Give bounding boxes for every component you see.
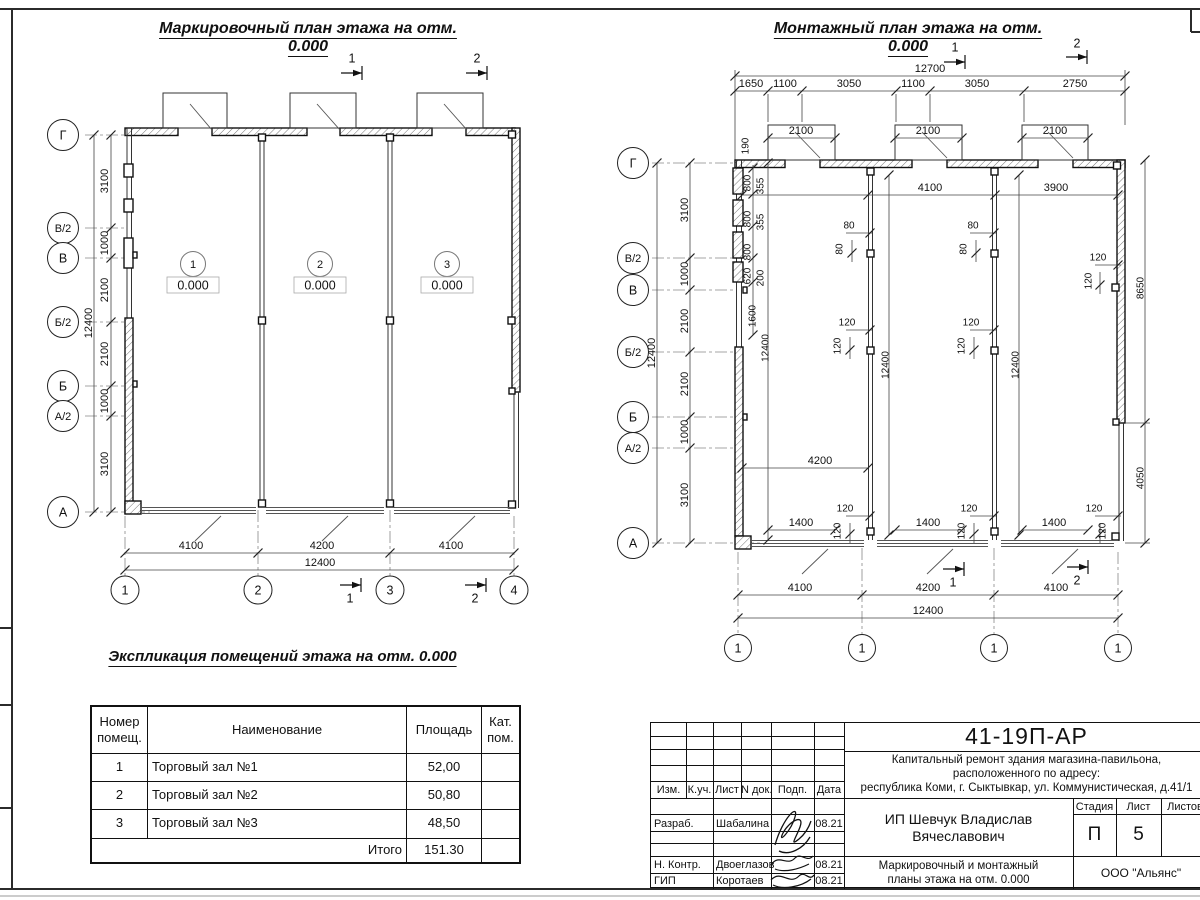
- room-level: 0.000: [431, 278, 462, 292]
- col-dimensions: 4100 4200 4100 12400: [734, 582, 1123, 623]
- col-header-cat: Кат. пом.: [482, 706, 521, 753]
- axis-label: 2: [255, 583, 262, 597]
- rev-header: Подп.: [771, 784, 814, 796]
- dim-label: 1650: [739, 78, 763, 90]
- dim-label: 3050: [837, 78, 861, 90]
- section-mark-label: 1: [950, 575, 957, 589]
- project-desc-line: расположенного по адресу:: [844, 768, 1200, 781]
- col-header-name: Наименование: [148, 706, 407, 753]
- signer-date: 08.21: [814, 859, 844, 871]
- dim-label: 4100: [788, 582, 812, 594]
- dim-label: 190: [741, 137, 752, 154]
- cell-cat: [482, 753, 521, 781]
- rev-header: Лист: [713, 784, 741, 796]
- dim-label: 80: [835, 243, 846, 255]
- explication-title: Экспликация помещений этажа на отм. 0.00…: [95, 648, 470, 665]
- signer-role: Н. Контр.: [654, 859, 701, 871]
- dim-label: 120: [833, 337, 844, 354]
- dim-label: 12400: [1011, 351, 1022, 379]
- axis-label: В/2: [55, 223, 72, 235]
- axis-lines: [652, 163, 1118, 634]
- dim-label: 4200: [808, 455, 832, 467]
- dim-label: 2100: [99, 342, 111, 366]
- dim-label: 2100: [1043, 125, 1067, 137]
- room-marks: 1 0.000 2 0.000 3 0.000: [167, 252, 473, 294]
- table-row: 1 Торговый зал №1 52,00: [91, 753, 520, 781]
- axis-label: А: [629, 536, 638, 550]
- dim-label: 120: [837, 504, 854, 515]
- axis-label: Б: [629, 410, 637, 424]
- dim-label: 120: [957, 337, 968, 354]
- sheet-title-line: планы этажа на отм. 0.000: [844, 874, 1073, 887]
- dim-label: 120: [1090, 253, 1107, 264]
- axis-label: А: [59, 505, 68, 519]
- dim-label: 800: [743, 243, 754, 260]
- dim-label: 3100: [679, 198, 691, 222]
- dim-label: 1400: [916, 517, 940, 529]
- dim-label: 120: [1086, 504, 1103, 515]
- dim-label: 80: [967, 221, 979, 232]
- dim-label: 80: [843, 221, 855, 232]
- section-mark-label: 2: [1074, 573, 1081, 587]
- dim-label: 620: [743, 267, 754, 284]
- signer-date: 08.21: [814, 818, 844, 830]
- rev-header: Дата: [814, 784, 844, 796]
- signer-name: Двоеглазов: [716, 859, 774, 871]
- cell-name: Торговый зал №2: [148, 781, 407, 809]
- row-axis-bubbles: Г В/2 В Б/2 Б А/2 А: [48, 120, 79, 528]
- dim-label: 120: [1098, 522, 1109, 539]
- axis-label: 1: [122, 583, 129, 597]
- dim-label: 1000: [679, 420, 691, 444]
- top-dimensions: 12700 1650 1100 3050 1100 3050 2750: [731, 63, 1130, 160]
- row-dimensions: 3100 1000 2100 2100 1000 3100 12400: [83, 131, 116, 517]
- dim-label: 2100: [916, 125, 940, 137]
- signature-icon: [769, 801, 815, 855]
- dim-label: 12400: [881, 351, 892, 379]
- marking-plan: 1 0.000 2 0.000 3 0.000 3100 1000 2100 2…: [48, 51, 529, 605]
- col-header-num: Номер помещ.: [91, 706, 148, 753]
- dim-label: 200: [756, 269, 767, 286]
- dim-label: 120: [1084, 272, 1095, 289]
- axis-label: 4: [511, 583, 518, 597]
- stage-header: Стадия: [1073, 801, 1116, 813]
- dim-label: 4100: [1044, 582, 1068, 594]
- cell-name: Торговый зал №1: [148, 753, 407, 781]
- signer-role: ГИП: [654, 875, 676, 887]
- dim-label: 4100: [439, 540, 463, 552]
- dim-label: 2750: [1063, 78, 1087, 90]
- montage-plan-title: Монтажный план этажа на отм. 0.000: [758, 20, 1058, 56]
- cell-area: 52,00: [407, 753, 482, 781]
- axis-label: 1: [735, 641, 742, 655]
- dim-label: 4100: [918, 182, 942, 194]
- axis-label: А/2: [55, 411, 72, 423]
- dim-total-label: 12400: [83, 308, 95, 339]
- room-number: 3: [444, 259, 450, 271]
- company-name: ООО "Альянс": [1073, 867, 1200, 880]
- dim-label: 1100: [901, 78, 925, 90]
- dim-label: 2100: [789, 125, 813, 137]
- drawing-sheet: { "marking_plan": { "title": "Маркировоч…: [0, 0, 1200, 900]
- cell-area: 48,50: [407, 809, 482, 838]
- dim-label: 4200: [916, 582, 940, 594]
- sheets-header: Листов: [1161, 801, 1200, 813]
- axis-label: В: [59, 251, 67, 265]
- cell-cat: [482, 838, 521, 863]
- axis-label: 1: [1115, 641, 1122, 655]
- room-level: 0.000: [304, 278, 335, 292]
- col-dimensions: 4100 4200 4100 12400: [121, 540, 519, 575]
- signature-icon: [769, 869, 815, 889]
- rev-header: К.уч.: [686, 784, 713, 796]
- dim-label: 120: [963, 318, 980, 329]
- dim-label: 1600: [748, 304, 759, 327]
- cell-name: Торговый зал №3: [148, 809, 407, 838]
- cell-num: 2: [91, 781, 148, 809]
- section-mark-label: 1: [347, 591, 354, 605]
- signer-name: Коротаев: [716, 875, 764, 887]
- dim-label: 2100: [99, 278, 111, 302]
- section-mark-label: 2: [472, 591, 479, 605]
- explication-table: Номер помещ. Наименование Площадь Кат. п…: [90, 705, 521, 864]
- table-row: 3 Торговый зал №3 48,50: [91, 809, 520, 838]
- section-mark-label: 2: [474, 51, 481, 65]
- dim-label: 3100: [679, 483, 691, 507]
- marking-plan-title: Маркировочный план этажа на отм. 0.000: [158, 20, 458, 56]
- table-row: 2 Торговый зал №2 50,80: [91, 781, 520, 809]
- client-name-line: ИП Шевчук Владислав: [844, 812, 1073, 827]
- dim-total-label: 12400: [305, 557, 336, 569]
- dim-label: 1400: [1042, 517, 1066, 529]
- dim-label: 2100: [679, 309, 691, 333]
- signer-name: Шабалина: [716, 818, 769, 830]
- project-desc-line: Капитальный ремонт здания магазина-павил…: [844, 754, 1200, 767]
- dim-label: 1000: [679, 262, 691, 286]
- sheet-title-line: Маркировочный и монтажный: [844, 860, 1073, 873]
- dim-label: 1000: [99, 231, 111, 255]
- total-label: Итого: [91, 838, 407, 863]
- cell-num: 1: [91, 753, 148, 781]
- dim-label: 3900: [1044, 182, 1068, 194]
- client-name-line: Вячеславович: [844, 829, 1073, 844]
- axis-lines: [85, 135, 514, 604]
- montage-plan: 12700 1650 1100 3050 1100 3050 2750: [618, 36, 1151, 661]
- dim-label: 4100: [179, 540, 203, 552]
- dim-label: 355: [756, 213, 767, 230]
- doc-number: 41-19П-АР: [844, 724, 1200, 749]
- axis-label: Б: [59, 379, 67, 393]
- axis-label: 1: [991, 641, 998, 655]
- total-value: 151.30: [407, 838, 482, 863]
- col-header-area: Площадь: [407, 706, 482, 753]
- dim-label: 8650: [1136, 276, 1147, 299]
- axis-label: А/2: [625, 443, 642, 455]
- cell-cat: [482, 781, 521, 809]
- table-header-row: Номер помещ. Наименование Площадь Кат. п…: [91, 706, 520, 753]
- signer-role: Разраб.: [654, 818, 694, 830]
- cell-num: 3: [91, 809, 148, 838]
- axis-label: Б/2: [55, 317, 71, 329]
- room-number: 2: [317, 259, 323, 271]
- col-axis-bubbles: 1 1 1 1: [725, 635, 1132, 662]
- dim-total-label: 12700: [915, 63, 946, 75]
- inner-dimensions: 190 4100 3900 800 355 800 355 800 620 20…: [738, 137, 1151, 547]
- dim-label: 3050: [965, 78, 989, 90]
- sheet-number: 5: [1116, 825, 1161, 846]
- dim-label: 800: [743, 210, 754, 227]
- dim-label: 4050: [1136, 466, 1147, 489]
- dim-label: 800: [743, 174, 754, 191]
- rev-header: N док.: [741, 784, 771, 796]
- stage-value: П: [1073, 825, 1116, 846]
- axis-label: 1: [859, 641, 866, 655]
- dim-label: 120: [839, 318, 856, 329]
- dim-label: 120: [957, 522, 968, 539]
- axis-label: 3: [387, 583, 394, 597]
- room-number: 1: [190, 259, 196, 271]
- dim-label: 3100: [99, 452, 111, 476]
- axis-label: В/2: [625, 253, 642, 265]
- axis-label: Г: [60, 128, 67, 142]
- col-axis-bubbles: 1 2 3 4: [111, 576, 528, 604]
- dim-label: 2100: [679, 372, 691, 396]
- room-level: 0.000: [177, 278, 208, 292]
- project-desc-line: республика Коми, г. Сыктывкар, ул. Комму…: [844, 782, 1200, 795]
- cell-area: 50,80: [407, 781, 482, 809]
- rev-header: Изм.: [651, 784, 686, 796]
- table-total-row: Итого 151.30: [91, 838, 520, 863]
- dim-label: 1100: [773, 78, 797, 90]
- dim-label: 1000: [99, 389, 111, 413]
- dim-label: 80: [959, 243, 970, 255]
- dim-label: 4200: [310, 540, 334, 552]
- section-mark-label: 2: [1074, 36, 1081, 50]
- axis-label: В: [629, 283, 637, 297]
- cell-cat: [482, 809, 521, 838]
- dim-label: 355: [756, 177, 767, 194]
- dim-label: 12400: [761, 334, 772, 362]
- dim-total-label: 12400: [913, 605, 944, 617]
- row-dimensions: 3100 1000 2100 2100 1000 3100 12400: [646, 159, 695, 548]
- axis-label: Г: [630, 156, 637, 170]
- signer-date: 08.21: [814, 875, 844, 887]
- title-block: 41-19П-АР Капитальный ремонт здания мага…: [650, 722, 1200, 888]
- sheet-header: Лист: [1116, 801, 1161, 813]
- walls: [124, 93, 520, 541]
- dim-label: 1400: [789, 517, 813, 529]
- dim-label: 120: [961, 504, 978, 515]
- dim-label: 3100: [99, 169, 111, 193]
- axis-label: Б/2: [625, 347, 641, 359]
- row-axis-bubbles: Г В/2 В Б/2 Б А/2 А: [618, 148, 649, 559]
